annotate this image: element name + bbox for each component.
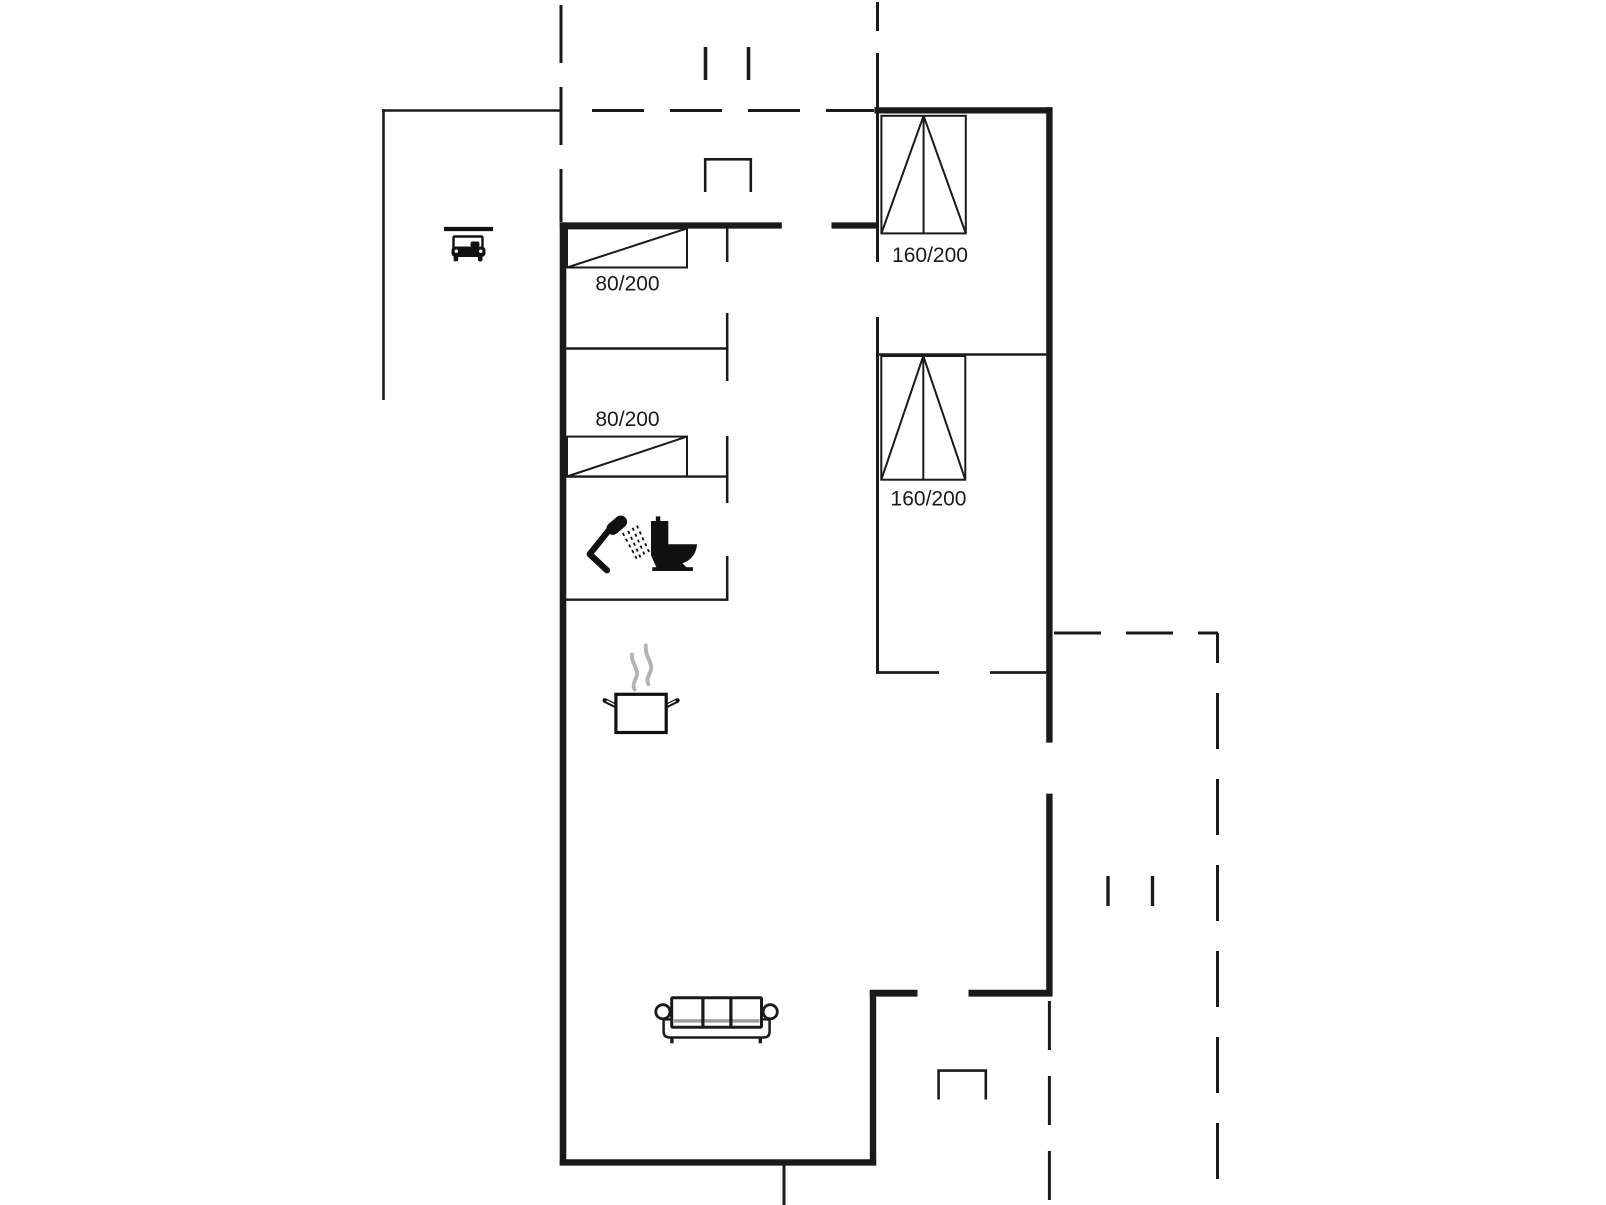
svg-text:80/200: 80/200 (595, 273, 659, 296)
svg-text:160/200: 160/200 (892, 244, 968, 267)
svg-text:80/200: 80/200 (595, 408, 659, 431)
svg-text:160/200: 160/200 (891, 488, 967, 511)
